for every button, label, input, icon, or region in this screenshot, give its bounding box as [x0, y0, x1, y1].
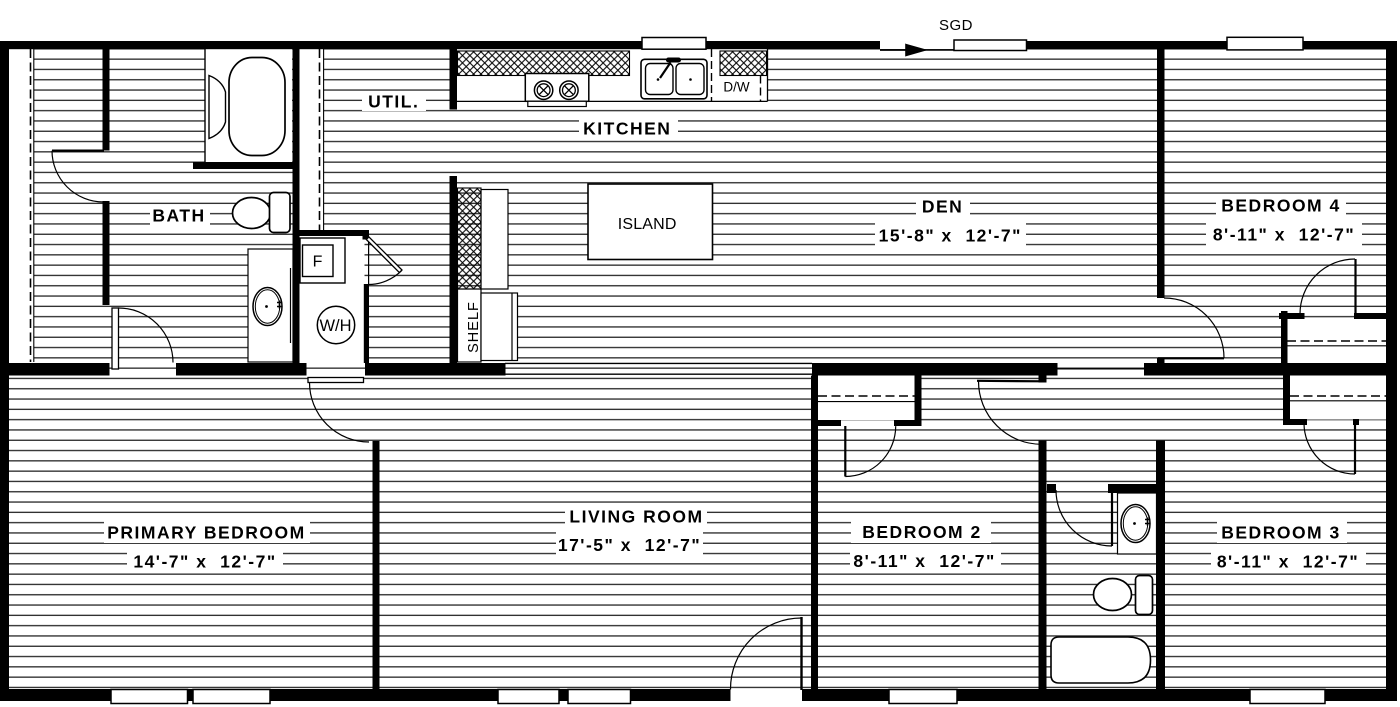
svg-text:ISLAND: ISLAND	[618, 216, 677, 233]
svg-text:BATH: BATH	[152, 206, 205, 226]
svg-text:SGD: SGD	[939, 17, 973, 34]
svg-text:F: F	[313, 254, 323, 271]
svg-text:UTIL.: UTIL.	[368, 92, 419, 112]
svg-text:15'-8" x 12'-7": 15'-8" x 12'-7"	[879, 225, 1022, 245]
svg-text:PRIMARY BEDROOM: PRIMARY BEDROOM	[107, 523, 305, 543]
svg-text:DEN: DEN	[922, 196, 963, 216]
svg-text:14'-7" x 12'-7": 14'-7" x 12'-7"	[133, 552, 276, 572]
svg-text:W/H: W/H	[319, 317, 351, 335]
svg-text:D/W: D/W	[723, 80, 750, 95]
svg-text:BEDROOM 2: BEDROOM 2	[862, 522, 981, 542]
svg-text:SHELF: SHELF	[466, 301, 482, 353]
svg-text:8'-11" x 12'-7": 8'-11" x 12'-7"	[1217, 552, 1359, 572]
svg-text:8'-11" x 12'-7": 8'-11" x 12'-7"	[853, 551, 995, 571]
svg-text:BEDROOM 3: BEDROOM 3	[1221, 523, 1340, 543]
svg-text:LIVING ROOM: LIVING ROOM	[569, 506, 703, 526]
svg-text:8'-11" x 12'-7": 8'-11" x 12'-7"	[1213, 225, 1355, 245]
svg-text:17'-5" x 12'-7": 17'-5" x 12'-7"	[558, 535, 701, 555]
svg-text:KITCHEN: KITCHEN	[583, 119, 671, 139]
svg-text:BEDROOM 4: BEDROOM 4	[1221, 196, 1340, 216]
